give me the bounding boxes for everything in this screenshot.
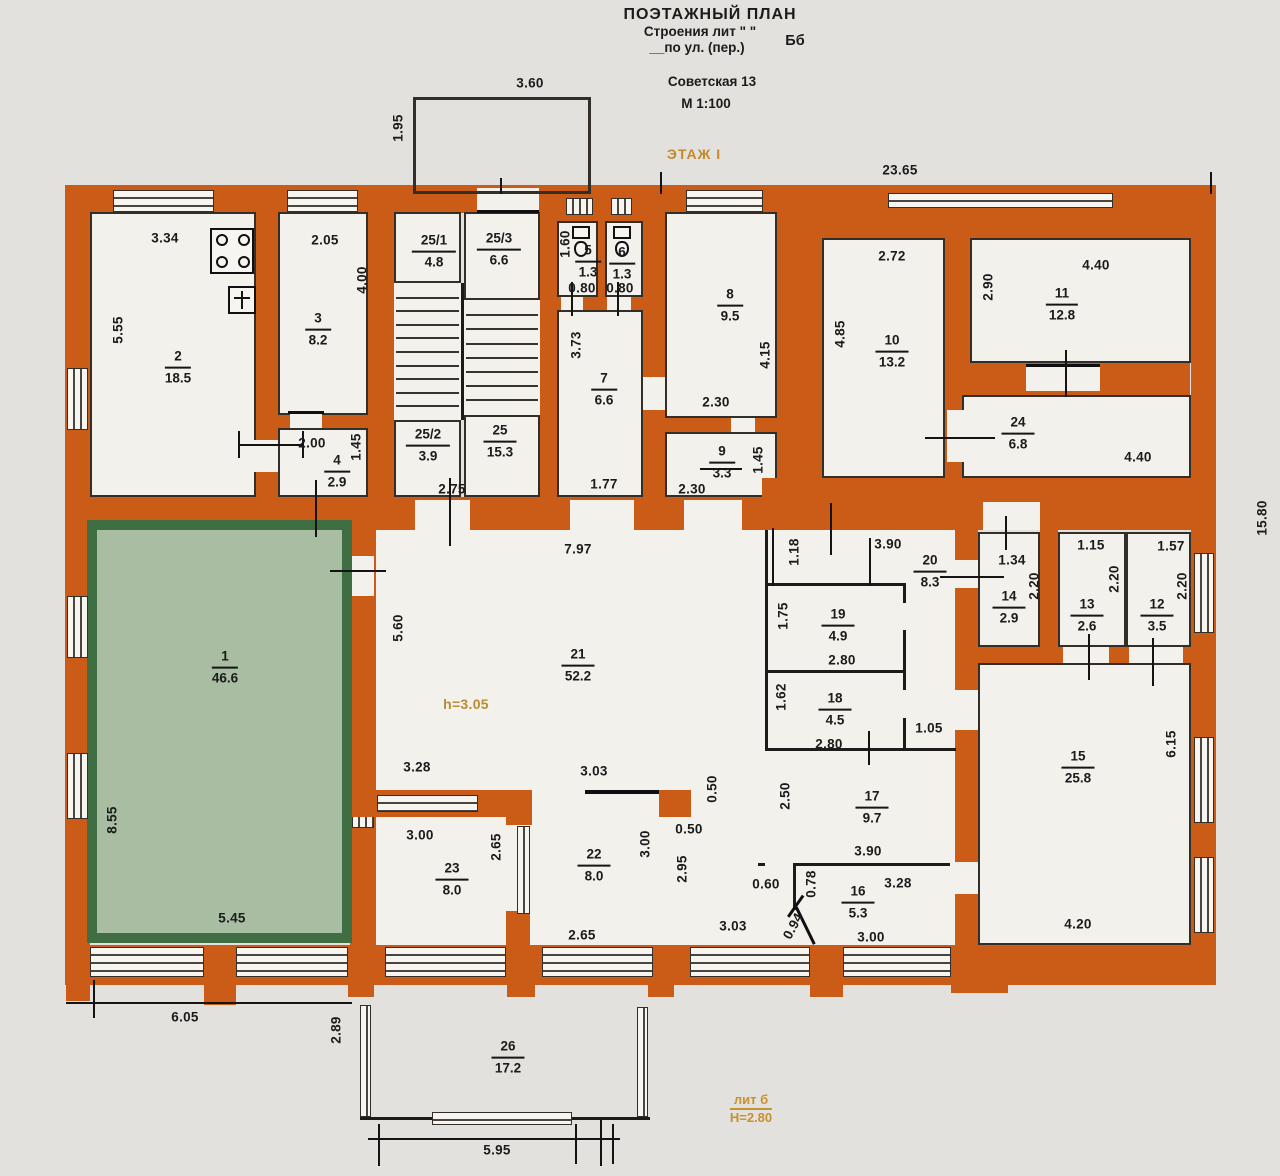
room-number: 25 bbox=[483, 423, 516, 443]
room-number: 22 bbox=[577, 847, 610, 867]
dim-label: 5.60 bbox=[391, 614, 406, 641]
room-11 bbox=[970, 238, 1191, 363]
tick-line bbox=[940, 576, 1004, 578]
interior-wall bbox=[665, 418, 777, 432]
wall-pier bbox=[506, 790, 532, 825]
dim-label: 3.34 bbox=[151, 231, 178, 246]
stove-burner bbox=[216, 234, 228, 246]
tick-line bbox=[315, 480, 317, 537]
dim-label: 4.15 bbox=[758, 341, 773, 368]
wall-pier bbox=[659, 790, 691, 817]
toilet-icon bbox=[613, 226, 631, 239]
room-area: 3.3 bbox=[713, 464, 732, 483]
room-label-3: 38.2 bbox=[305, 311, 331, 350]
partition-line bbox=[765, 530, 768, 586]
tick-line bbox=[660, 172, 662, 194]
door-opening bbox=[947, 410, 968, 462]
dim-label: 2.30 bbox=[702, 395, 729, 410]
dim-label: 1.75 bbox=[776, 602, 791, 629]
room-number: 17 bbox=[855, 789, 888, 809]
plan-subtitle-street: __по ул. (пер.) bbox=[649, 40, 744, 55]
room-number: 3 bbox=[305, 311, 331, 331]
tick-line bbox=[1210, 172, 1212, 194]
dim-label: 0.80 bbox=[568, 281, 595, 296]
partition-line bbox=[903, 630, 906, 690]
dim-label: 2.95 bbox=[675, 855, 690, 882]
room-label-12: 123.5 bbox=[1140, 597, 1173, 636]
window bbox=[113, 190, 214, 212]
wall-pier bbox=[506, 911, 530, 945]
interior-wall bbox=[643, 212, 665, 502]
room-area: 3.5 bbox=[1148, 617, 1167, 636]
room-area: 8.0 bbox=[443, 881, 462, 900]
room-number: 9 bbox=[709, 444, 735, 464]
stair-tread bbox=[466, 371, 538, 373]
dim-label: 2.89 bbox=[329, 1016, 344, 1043]
annex-window bbox=[432, 1112, 572, 1125]
room-number: 16 bbox=[841, 884, 874, 904]
room-label-16: 165.3 bbox=[841, 884, 874, 923]
dim-label: 2.80 bbox=[815, 737, 842, 752]
dim-label: 4.85 bbox=[833, 320, 848, 347]
room-area: 8.0 bbox=[585, 867, 604, 886]
door-opening bbox=[643, 377, 665, 410]
dim-label: 0.80 bbox=[606, 281, 633, 296]
dim-label: 1.77 bbox=[590, 477, 617, 492]
stair-tread bbox=[466, 399, 538, 401]
stair-tread bbox=[466, 328, 538, 330]
tick-line bbox=[330, 570, 386, 572]
door-opening bbox=[1063, 647, 1109, 663]
tick-line bbox=[925, 437, 995, 439]
dim-label: 2.65 bbox=[568, 928, 595, 943]
partition-line bbox=[765, 670, 903, 673]
dim-label: 15.80 bbox=[1255, 500, 1270, 535]
pier-tab bbox=[348, 983, 374, 997]
room-number: 14 bbox=[992, 589, 1025, 609]
room-number: 10 bbox=[875, 333, 908, 353]
window bbox=[90, 947, 204, 977]
dim-label: 3.60 bbox=[516, 76, 543, 91]
plan-subtitle-building: Строения лит " " bbox=[644, 24, 756, 39]
room-area: 6.6 bbox=[490, 251, 509, 270]
dim-label: 6.15 bbox=[1164, 730, 1179, 757]
room-area: 18.5 bbox=[165, 369, 191, 388]
room-number: 21 bbox=[561, 647, 594, 667]
room-label-5: 51.3 bbox=[575, 243, 601, 282]
plan-address: Советская 13 bbox=[668, 74, 756, 89]
tick-line bbox=[238, 444, 304, 446]
dim-label: 2.00 bbox=[298, 436, 325, 451]
interior-wall bbox=[1040, 530, 1058, 647]
room-area: 1.3 bbox=[579, 263, 598, 282]
dim-label: 1.57 bbox=[1157, 539, 1184, 554]
tick-line bbox=[868, 731, 870, 765]
tick-line bbox=[93, 980, 95, 1018]
room-number: 18 bbox=[818, 691, 851, 711]
room-number: 20 bbox=[913, 553, 946, 573]
room-area: 52.2 bbox=[565, 667, 591, 686]
room-label-2: 218.5 bbox=[165, 349, 191, 388]
room-area: 9.5 bbox=[721, 307, 740, 326]
dim-label: 3.00 bbox=[857, 930, 884, 945]
dim-label: 0.78 bbox=[804, 870, 819, 897]
tick-line bbox=[238, 431, 240, 458]
door-lintel bbox=[288, 411, 324, 414]
interior-window bbox=[377, 795, 478, 812]
dim-label: 1.45 bbox=[349, 433, 364, 460]
dim-label: 3.90 bbox=[854, 844, 881, 859]
tick-line bbox=[600, 1120, 602, 1166]
room-number: 13 bbox=[1070, 597, 1103, 617]
pier-tab bbox=[810, 983, 843, 997]
room-label-21: 2152.2 bbox=[561, 647, 594, 686]
room-area: 8.3 bbox=[921, 573, 940, 592]
room-area: 3.9 bbox=[419, 447, 438, 466]
room-label-4: 42.9 bbox=[324, 453, 350, 492]
room-number: 7 bbox=[591, 371, 617, 391]
tick-line bbox=[772, 528, 774, 586]
dim-label: 3.00 bbox=[406, 828, 433, 843]
dim-label: 3.00 bbox=[638, 830, 653, 857]
tick-line bbox=[1088, 634, 1090, 680]
room-area: 12.8 bbox=[1049, 306, 1075, 325]
dim-label: 3.03 bbox=[719, 919, 746, 934]
wall-pier bbox=[951, 947, 1008, 993]
door-opening bbox=[1129, 647, 1183, 663]
room-label-14: 142.9 bbox=[992, 589, 1025, 628]
stove-burner bbox=[216, 256, 228, 268]
dim-label: 8.55 bbox=[105, 806, 120, 833]
dim-label: 4.40 bbox=[1082, 258, 1109, 273]
room-number: 1 bbox=[212, 649, 238, 669]
dim-label: 23.65 bbox=[882, 163, 917, 178]
door-opening bbox=[570, 500, 634, 530]
window bbox=[287, 190, 358, 212]
window bbox=[67, 368, 88, 430]
note-annex-height: Н=2.80 bbox=[730, 1110, 772, 1125]
room-number: 11 bbox=[1046, 286, 1078, 306]
floor-plan-scan: ПОЭТАЖНЫЙ ПЛАН Строения лит " " __по ул.… bbox=[0, 0, 1280, 1176]
room-label-6: 61.3 bbox=[609, 245, 635, 284]
room-number: 4 bbox=[324, 453, 350, 473]
green-highlight-room-1 bbox=[87, 520, 352, 943]
dim-label: 1.60 bbox=[558, 230, 573, 257]
door-opening bbox=[607, 297, 631, 310]
dim-label: 2.65 bbox=[489, 833, 504, 860]
dim-label: 2.20 bbox=[1027, 572, 1042, 599]
room-area: 4.9 bbox=[829, 627, 848, 646]
dimension-line bbox=[368, 1138, 620, 1140]
stair-tread bbox=[396, 351, 459, 353]
tick-line bbox=[830, 503, 832, 555]
partition-line bbox=[765, 583, 906, 586]
dim-label: 1.18 bbox=[787, 538, 802, 565]
interior-wall bbox=[540, 212, 557, 500]
room-area: 13.2 bbox=[879, 353, 905, 372]
stair-tread bbox=[396, 365, 459, 367]
door-opening bbox=[731, 418, 755, 432]
dim-label: 3.90 bbox=[874, 537, 901, 552]
pier-tab bbox=[648, 983, 674, 997]
room-area: 15.3 bbox=[487, 443, 513, 462]
room-label-25-3: 25/36.6 bbox=[477, 231, 521, 270]
room-number: 8 bbox=[717, 287, 743, 307]
stair-tread bbox=[396, 337, 459, 339]
dim-label: 4.00 bbox=[355, 266, 370, 293]
room-area: 9.7 bbox=[863, 809, 882, 828]
dim-label: 2.80 bbox=[828, 653, 855, 668]
tick-line bbox=[500, 178, 502, 194]
room-area: 17.2 bbox=[495, 1059, 521, 1078]
dim-label: 5.45 bbox=[218, 911, 245, 926]
interior-wall bbox=[777, 212, 822, 478]
sink-detail bbox=[241, 291, 243, 309]
dim-label: 2.20 bbox=[1107, 565, 1122, 592]
door-opening bbox=[415, 500, 470, 530]
room-number: 24 bbox=[1001, 415, 1034, 435]
interior-window bbox=[517, 826, 530, 914]
plan-title: ПОЭТАЖНЫЙ ПЛАН bbox=[623, 6, 796, 24]
window bbox=[67, 596, 88, 658]
pier-tab bbox=[66, 983, 90, 1001]
dim-label: 2.90 bbox=[981, 273, 996, 300]
vent-shaft bbox=[611, 198, 632, 215]
dim-label: 1.95 bbox=[391, 114, 406, 141]
room-24 bbox=[962, 395, 1191, 478]
window bbox=[385, 947, 506, 977]
door-opening bbox=[955, 862, 978, 894]
window bbox=[888, 193, 1113, 208]
room-area: 4.5 bbox=[826, 711, 845, 730]
room-area: 2.9 bbox=[1000, 609, 1019, 628]
dim-label: 2.30 bbox=[678, 482, 705, 497]
stair-tread bbox=[466, 343, 538, 345]
annex-window bbox=[637, 1007, 648, 1117]
room-label-25-1: 25/14.8 bbox=[412, 233, 456, 272]
dim-label: 1.15 bbox=[1077, 538, 1104, 553]
room-number: 25/3 bbox=[477, 231, 521, 251]
dim-label: 4.20 bbox=[1064, 917, 1091, 932]
room-label-22: 228.0 bbox=[577, 847, 610, 886]
tick-line bbox=[1065, 350, 1067, 397]
room-number: 6 bbox=[609, 245, 635, 265]
partition-line bbox=[793, 863, 950, 866]
annex-window bbox=[360, 1005, 371, 1117]
room-label-19: 194.9 bbox=[821, 607, 854, 646]
window bbox=[1194, 553, 1214, 633]
stair-tread bbox=[466, 357, 538, 359]
porch-outline bbox=[413, 97, 591, 194]
room-label-11: 1112.8 bbox=[1046, 286, 1078, 325]
window bbox=[1194, 737, 1214, 823]
room-label-8: 89.5 bbox=[717, 287, 743, 326]
room-area: 25.8 bbox=[1065, 769, 1091, 788]
window bbox=[236, 947, 348, 977]
dim-label: 7.97 bbox=[564, 542, 591, 557]
stair-tread bbox=[466, 385, 538, 387]
plan-lit-label: Бб bbox=[785, 33, 804, 49]
room-number: 15 bbox=[1061, 749, 1094, 769]
room-number: 12 bbox=[1140, 597, 1173, 617]
window bbox=[1194, 857, 1214, 933]
dim-label: 0.50 bbox=[705, 775, 720, 802]
stair-tread bbox=[396, 378, 459, 380]
tick-line bbox=[1152, 638, 1154, 686]
note-annex-lit: лит б bbox=[730, 1092, 772, 1110]
room-number: 25/2 bbox=[406, 427, 450, 447]
room-area: 2.6 bbox=[1078, 617, 1097, 636]
window bbox=[67, 753, 88, 819]
dim-label: 1.45 bbox=[751, 446, 766, 473]
stair-tread bbox=[396, 324, 459, 326]
window bbox=[686, 190, 763, 212]
door-lintel bbox=[477, 210, 539, 213]
dim-label: 6.05 bbox=[171, 1010, 198, 1025]
room-label-15: 1525.8 bbox=[1061, 749, 1094, 788]
room-number: 2 bbox=[165, 349, 191, 369]
room-area: 5.3 bbox=[849, 904, 868, 923]
room-label-13: 132.6 bbox=[1070, 597, 1103, 636]
sink-detail bbox=[234, 297, 250, 299]
room-label-26: 2617.2 bbox=[491, 1039, 524, 1078]
window bbox=[542, 947, 653, 977]
dim-label: 1.05 bbox=[915, 721, 942, 736]
dim-label: 1.62 bbox=[774, 683, 789, 710]
stair-divider bbox=[461, 283, 464, 420]
door-opening bbox=[955, 560, 978, 588]
door-opening bbox=[585, 794, 661, 817]
room-label-18: 184.5 bbox=[818, 691, 851, 730]
dim-label: 5.95 bbox=[483, 1143, 510, 1158]
floor-label: ЭТАЖ I bbox=[667, 146, 721, 162]
tick-line bbox=[612, 1124, 614, 1164]
partition-line bbox=[903, 718, 906, 748]
room-number: 23 bbox=[435, 861, 468, 881]
door-opening bbox=[691, 790, 765, 817]
vent-shaft bbox=[566, 198, 593, 215]
door-opening bbox=[290, 413, 322, 428]
room-area: 6.6 bbox=[595, 391, 614, 410]
stair-tread bbox=[396, 405, 459, 407]
plan-scale: М 1:100 bbox=[681, 96, 731, 111]
dimension-line bbox=[66, 1002, 352, 1004]
room-number: 19 bbox=[821, 607, 854, 627]
room-label-25: 2515.3 bbox=[483, 423, 516, 462]
room-number: 26 bbox=[491, 1039, 524, 1059]
dim-label: 0.50 bbox=[675, 822, 702, 837]
window bbox=[690, 947, 810, 977]
door-opening bbox=[532, 790, 585, 817]
toilet-icon bbox=[572, 226, 590, 239]
room-area: 6.8 bbox=[1009, 435, 1028, 454]
room-area: 2.9 bbox=[328, 473, 347, 492]
door-opening bbox=[1026, 367, 1100, 391]
stair-tread bbox=[396, 310, 459, 312]
dim-label: 4.40 bbox=[1124, 450, 1151, 465]
dim-label: 2.72 bbox=[878, 249, 905, 264]
window bbox=[843, 947, 951, 977]
room-label-10: 1013.2 bbox=[875, 333, 908, 372]
room-label-24: 246.8 bbox=[1001, 415, 1034, 454]
door-opening bbox=[684, 500, 742, 530]
room-area: 4.8 bbox=[425, 253, 444, 272]
tick-line bbox=[1005, 516, 1007, 550]
stove-burner bbox=[238, 234, 250, 246]
dim-label: 3.03 bbox=[580, 764, 607, 779]
partition-line bbox=[758, 863, 765, 866]
stair-tread bbox=[466, 314, 538, 316]
tick-line bbox=[378, 1124, 380, 1166]
tick-line bbox=[869, 538, 871, 586]
door-opening bbox=[955, 690, 978, 730]
room-label-9: 93.3 bbox=[709, 444, 735, 483]
stair-tread bbox=[396, 392, 459, 394]
note-ceiling-height: h=3.05 bbox=[443, 696, 489, 712]
room-label-25-2: 25/23.9 bbox=[406, 427, 450, 466]
room-label-17: 179.7 bbox=[855, 789, 888, 828]
dim-label: 2.20 bbox=[1175, 572, 1190, 599]
dim-label: 2.05 bbox=[311, 233, 338, 248]
partition-line bbox=[765, 583, 768, 751]
corridor-wall-band bbox=[762, 478, 1191, 530]
dim-label: 5.55 bbox=[111, 316, 126, 343]
dim-label: 2.50 bbox=[778, 782, 793, 809]
dim-label: 3.28 bbox=[403, 760, 430, 775]
dim-label: 0.60 bbox=[752, 877, 779, 892]
room-number: 25/1 bbox=[412, 233, 456, 253]
room-area: 46.6 bbox=[212, 669, 238, 688]
pier-tab bbox=[507, 983, 535, 997]
note-annex: лит б Н=2.80 bbox=[730, 1092, 772, 1125]
interior-wall bbox=[368, 212, 394, 500]
door-opening bbox=[352, 556, 374, 596]
stove-burner bbox=[238, 256, 250, 268]
room-15 bbox=[978, 663, 1191, 945]
stair-tread bbox=[396, 297, 459, 299]
partition-line bbox=[765, 748, 956, 751]
door-lintel bbox=[1026, 364, 1100, 367]
room-label-7: 76.6 bbox=[591, 371, 617, 410]
dim-label: 2.75 bbox=[438, 482, 465, 497]
dim-label: 3.73 bbox=[569, 331, 584, 358]
room-label-1: 146.6 bbox=[212, 649, 238, 688]
room-area: 8.2 bbox=[309, 331, 328, 350]
dim-label: 1.34 bbox=[998, 553, 1025, 568]
tick-line bbox=[575, 1124, 577, 1164]
room-label-23: 238.0 bbox=[435, 861, 468, 900]
interior-wall bbox=[760, 213, 1191, 240]
partition-line bbox=[903, 583, 906, 603]
room-label-20: 208.3 bbox=[913, 553, 946, 592]
door-opening bbox=[983, 502, 1040, 530]
room-number: 5 bbox=[575, 243, 601, 263]
dim-label: 3.28 bbox=[884, 876, 911, 891]
